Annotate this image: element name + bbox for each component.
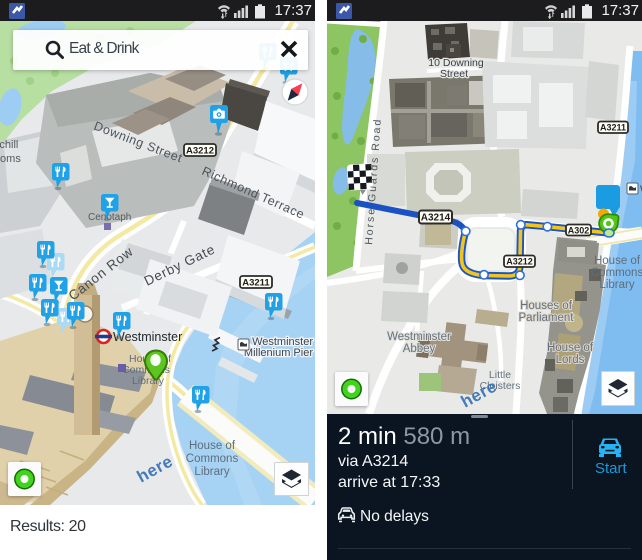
svg-text:Commons: Commons xyxy=(186,453,239,465)
svg-text:Library: Library xyxy=(194,466,229,478)
svg-text:Millenium Pier: Millenium Pier xyxy=(244,347,313,359)
svg-text:Commons: Commons xyxy=(591,267,642,279)
svg-text:A302: A302 xyxy=(568,225,590,235)
svg-text:churchill: churchill xyxy=(0,139,18,151)
svg-text:Westminster: Westminster xyxy=(113,330,182,344)
svg-text:Houses of: Houses of xyxy=(520,300,573,312)
svg-text:A3212: A3212 xyxy=(186,146,214,157)
svg-text:House of: House of xyxy=(547,342,594,354)
svg-text:Lords: Lords xyxy=(556,354,585,366)
svg-text:Parliament: Parliament xyxy=(519,312,575,324)
svg-text:Cenotaph: Cenotaph xyxy=(88,212,131,223)
svg-text:A3211: A3211 xyxy=(242,278,270,289)
svg-text:Library: Library xyxy=(599,279,634,291)
svg-text:Rooms: Rooms xyxy=(0,153,21,165)
svg-text:A3212: A3212 xyxy=(506,257,533,267)
svg-text:Abbey: Abbey xyxy=(403,343,436,355)
svg-text:House of: House of xyxy=(189,440,236,452)
svg-text:A3211: A3211 xyxy=(600,123,626,133)
svg-text:Street: Street xyxy=(440,68,468,80)
svg-text:A3214: A3214 xyxy=(421,213,451,224)
svg-text:Westminster: Westminster xyxy=(387,331,451,343)
svg-text:House of: House of xyxy=(594,255,641,267)
